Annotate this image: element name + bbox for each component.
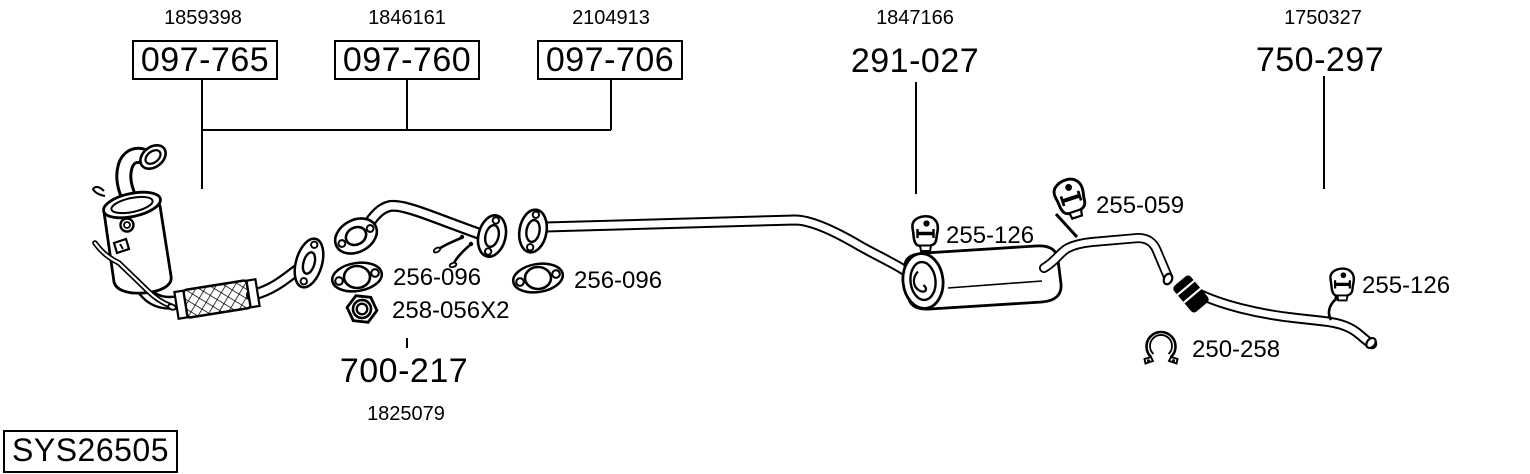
oe-ref-label: 1846161 [368, 8, 446, 28]
oe-ref-label: 1750327 [1284, 8, 1362, 28]
front-pipe-drawing [329, 206, 510, 268]
hardware-part-label[interactable]: 255-126 [1362, 274, 1450, 298]
part-number-box[interactable]: 097-765 [132, 40, 278, 80]
part-number-label[interactable]: 291-027 [851, 44, 979, 78]
hardware-part-label[interactable]: 255-126 [946, 224, 1034, 248]
tailpipe-joint [1172, 274, 1211, 314]
system-code-badge: SYS26505 [3, 430, 178, 473]
gasket-icon [330, 259, 384, 294]
hardware-part-label[interactable]: 256-096 [574, 269, 662, 293]
oe-ref-label: 1859398 [164, 8, 242, 28]
rubber-mounting-icon [1330, 269, 1353, 301]
clamp-icon [1145, 332, 1178, 364]
oe-ref-label: 1847166 [876, 8, 954, 28]
oe-ref-label: 2104913 [572, 8, 650, 28]
part-number-box[interactable]: 097-706 [537, 40, 683, 80]
part-number-label[interactable]: 700-217 [340, 354, 468, 388]
centre-silencer-drawing [900, 214, 1174, 310]
gasket-icon [511, 260, 565, 295]
exhaust-system-diagram: 1859398 1846161 2104913 1847166 1750327 … [0, 0, 1530, 474]
flex-braid [174, 279, 259, 319]
part-number-box[interactable]: 097-760 [334, 40, 480, 80]
oe-ref-label: 1825079 [367, 404, 445, 424]
centre-pipe-drawing [516, 207, 904, 270]
hardware-part-label[interactable]: 255-059 [1096, 194, 1184, 218]
hardware-part-label[interactable]: 250-258 [1192, 338, 1280, 362]
rubber-mounting-icon [912, 216, 937, 251]
part-number-label[interactable]: 750-297 [1256, 43, 1384, 77]
catalytic-converter-drawing [93, 141, 328, 320]
hex-nut-icon [346, 295, 378, 323]
hardware-part-label[interactable]: 256-096 [393, 266, 481, 290]
hardware-part-label[interactable]: 258-056X2 [392, 299, 509, 323]
cat-outlet-flange [290, 235, 329, 290]
